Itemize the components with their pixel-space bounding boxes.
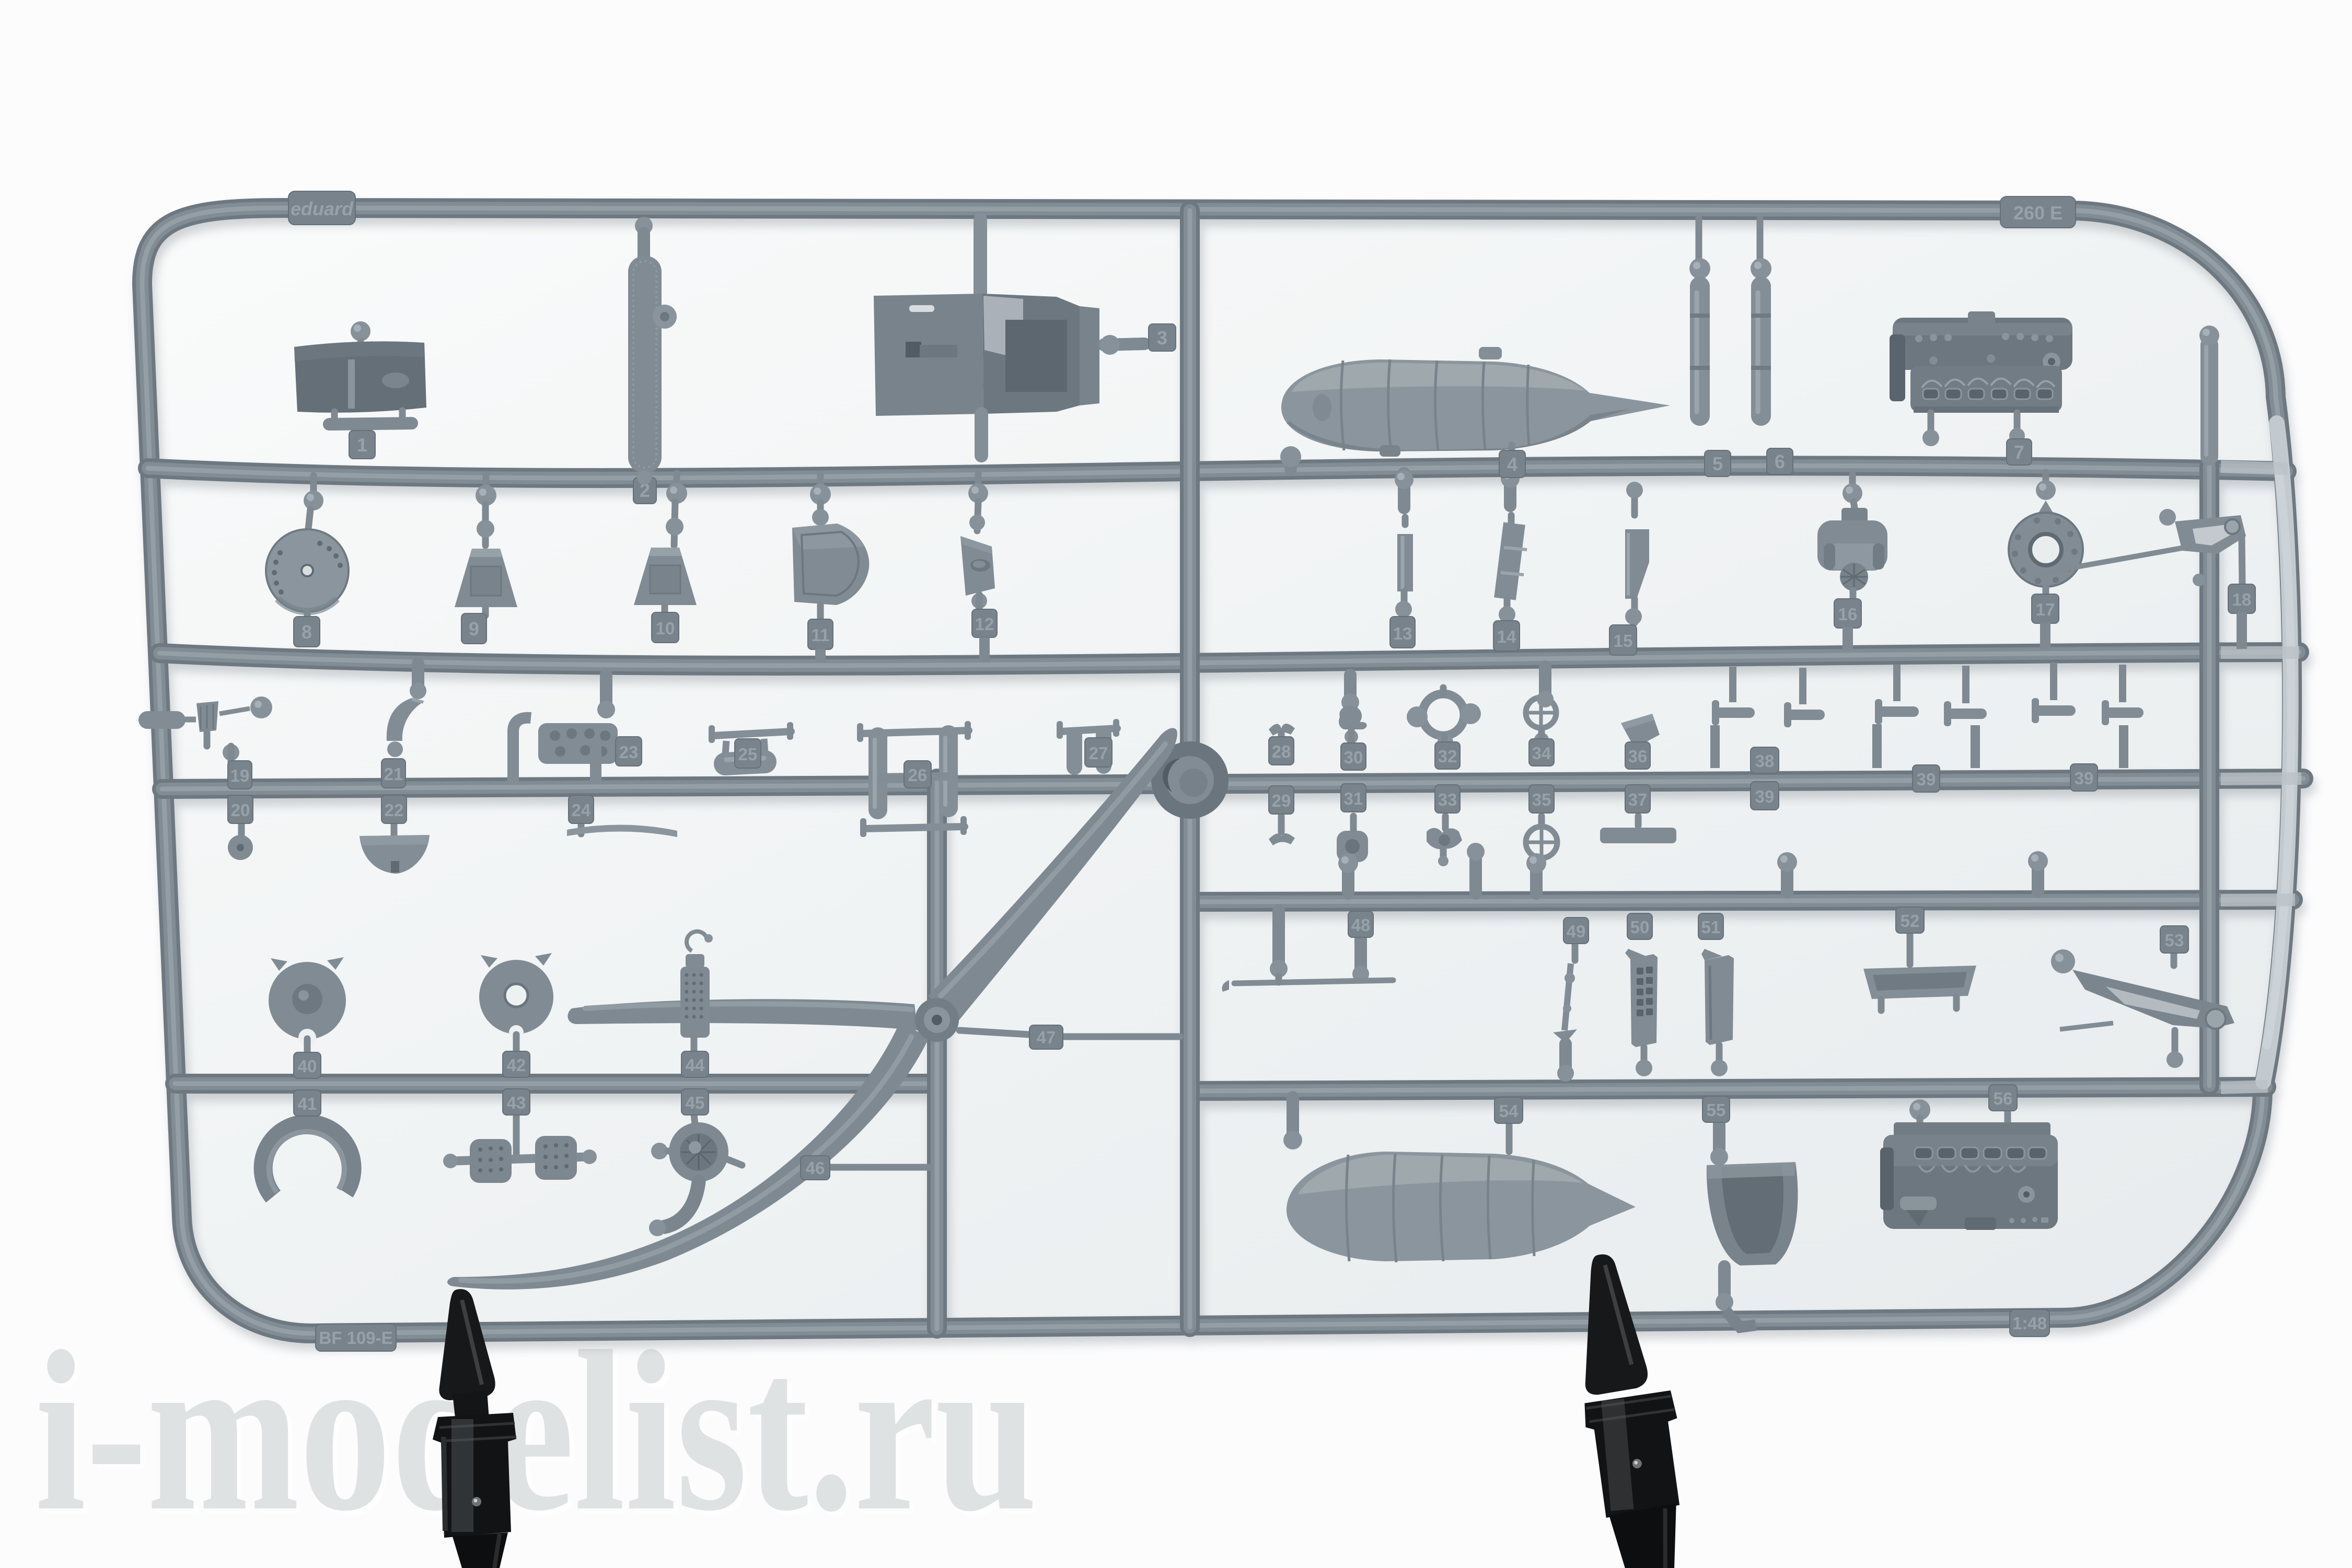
svg-text:14: 14 [1497,627,1516,646]
svg-text:47: 47 [1037,1028,1056,1047]
svg-text:22: 22 [385,800,404,820]
svg-text:51: 51 [1701,917,1721,937]
svg-text:33: 33 [1438,790,1457,809]
svg-text:49: 49 [1567,922,1586,941]
svg-text:1: 1 [357,434,367,456]
svg-text:35: 35 [1532,790,1551,809]
svg-text:32: 32 [1438,747,1457,766]
svg-text:5: 5 [1712,453,1723,474]
svg-text:38: 38 [1755,751,1775,771]
svg-text:36: 36 [1628,747,1648,766]
svg-text:8: 8 [302,621,312,643]
svg-text:11: 11 [812,625,830,645]
svg-text:31: 31 [1344,789,1363,808]
svg-text:24: 24 [572,800,591,820]
svg-text:55: 55 [1707,1100,1726,1120]
svg-text:30: 30 [1344,748,1363,767]
svg-text:23: 23 [619,742,639,762]
svg-text:48: 48 [1351,915,1371,935]
svg-text:eduard: eduard [291,198,354,219]
svg-text:BF 109-E: BF 109-E [319,1328,392,1348]
svg-text:43: 43 [507,1093,526,1112]
svg-text:41: 41 [298,1094,317,1113]
svg-text:21: 21 [384,764,403,784]
svg-text:37: 37 [1628,790,1648,809]
svg-text:29: 29 [1272,791,1291,810]
svg-text:56: 56 [1994,1089,2013,1108]
svg-text:9: 9 [469,618,479,640]
svg-text:52: 52 [1901,911,1920,931]
svg-text:39: 39 [1755,787,1775,806]
svg-text:53: 53 [2165,931,2184,950]
svg-text:12: 12 [975,614,994,634]
svg-text:4: 4 [1507,454,1517,475]
svg-text:42: 42 [507,1055,526,1075]
svg-text:1:48: 1:48 [2012,1314,2047,1333]
svg-text:45: 45 [686,1093,705,1112]
svg-text:16: 16 [1838,605,1858,624]
svg-text:20: 20 [231,800,250,820]
svg-text:15: 15 [1614,631,1633,651]
svg-text:18: 18 [2232,590,2252,609]
svg-text:3: 3 [1157,327,1167,349]
svg-text:7: 7 [2014,442,2024,463]
svg-text:50: 50 [1630,917,1650,937]
svg-text:28: 28 [1272,742,1291,761]
svg-text:54: 54 [1499,1101,1519,1121]
svg-text:26: 26 [908,765,928,785]
svg-text:39: 39 [1917,770,1936,789]
svg-text:10: 10 [656,619,675,638]
svg-text:44: 44 [686,1055,705,1075]
svg-text:260 E: 260 E [2013,202,2063,224]
svg-text:39: 39 [2075,769,2094,788]
svg-text:27: 27 [1089,744,1108,763]
svg-text:6: 6 [1775,451,1785,472]
svg-text:34: 34 [1532,744,1551,763]
svg-text:46: 46 [806,1158,825,1178]
svg-text:13: 13 [1393,624,1412,643]
svg-text:25: 25 [738,745,758,764]
svg-text:19: 19 [230,766,250,785]
svg-text:17: 17 [2036,600,2055,619]
svg-text:40: 40 [298,1056,317,1076]
